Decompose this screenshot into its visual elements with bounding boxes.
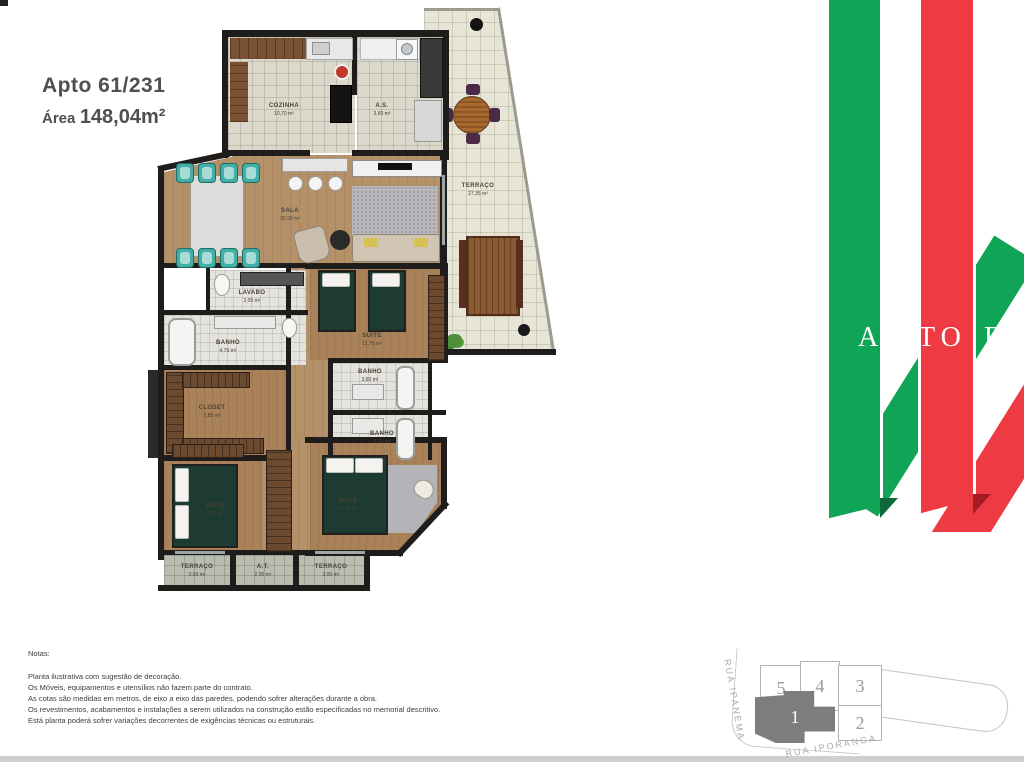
area-value: 148,04m²: [80, 106, 166, 128]
logo-letter-a: A: [858, 322, 884, 354]
site-unit-3: 3: [838, 665, 882, 707]
shaft: [148, 370, 158, 458]
deck-bench: [516, 240, 523, 308]
deck-table: [466, 236, 520, 316]
hall-wardrobe: [266, 450, 292, 552]
kitchen-cabinet-brown: [230, 38, 306, 59]
wall: [305, 263, 447, 269]
wall: [222, 150, 310, 156]
logo-letter-to: TO: [918, 322, 967, 354]
bar-stool: [328, 176, 343, 191]
dining-chair: [220, 248, 238, 268]
mid-suite-wardrobe: [428, 275, 445, 361]
notes-line: Planta ilustrativa com sugestão de decor…: [28, 671, 440, 682]
apartment-area: Área 148,04m²: [42, 106, 165, 129]
logo-red-bar: [918, 0, 976, 514]
terrace-column: [518, 324, 530, 336]
coffee-table: [330, 230, 350, 250]
logo-letter-fi: FI: [984, 322, 1021, 354]
terrace-chair: [466, 84, 480, 95]
tv: [378, 163, 412, 170]
wall: [428, 363, 432, 460]
bathtub: [168, 318, 196, 366]
left-suite-dresser: [172, 444, 244, 458]
bed-pillow: [326, 458, 354, 473]
bed-pillow: [175, 505, 189, 539]
notes-block: Notas: Planta ilustrativa com sugestão d…: [28, 648, 440, 726]
dining-chair: [176, 163, 194, 183]
dining-chair: [242, 248, 260, 268]
wall-left-outer: [158, 168, 164, 560]
bath1-tub: [396, 366, 415, 410]
notes-line: Os Móveis, equipamentos e utensílios não…: [28, 682, 440, 693]
wall: [443, 30, 449, 160]
wall: [305, 437, 447, 443]
dining-chair: [198, 163, 216, 183]
sofa-pillow: [414, 238, 428, 247]
area-label: Área: [42, 110, 75, 127]
apartment-title: Apto 61/231: [42, 74, 165, 98]
wall: [352, 150, 449, 156]
lavabo-sink-counter: [240, 272, 304, 286]
wall: [364, 555, 370, 591]
notes-line: Está planta poderá sofrer variações deco…: [28, 715, 440, 726]
kitchen-side-cabinet: [230, 62, 248, 122]
logo-green-fold: [880, 498, 898, 518]
bath-toilet: [282, 318, 297, 338]
oven-tower: [330, 85, 352, 123]
dining-chair: [220, 163, 238, 183]
dining-table: [190, 175, 244, 257]
wall: [440, 349, 556, 355]
service-tall-cabinet: [420, 38, 443, 98]
window-glass: [175, 551, 225, 554]
wall: [158, 585, 370, 591]
round-table: [453, 96, 491, 134]
bed-pillow: [372, 273, 400, 287]
window-glass: [442, 175, 445, 245]
terrace-chair: [489, 108, 500, 122]
bar-stool: [308, 176, 323, 191]
logo-green-bar: [826, 0, 883, 519]
bar-stool: [288, 176, 303, 191]
dining-chair: [242, 163, 260, 183]
dining-chair: [198, 248, 216, 268]
brand-logo: A TO FI: [812, 0, 1024, 532]
bar-counter: [282, 158, 348, 172]
terrace-plant-black: [470, 18, 483, 31]
bath-sink-counter: [214, 316, 276, 329]
deck-bench: [459, 240, 466, 308]
lavabo-toilet: [214, 274, 230, 296]
bottom-terrace-floor: [164, 555, 368, 588]
dining-chair: [176, 248, 194, 268]
corner-artifact: [0, 0, 8, 6]
bed-pillow: [322, 273, 350, 287]
bath2-tub: [396, 418, 415, 460]
notes-line: Os revestimentos, acabamentos e instalaç…: [28, 704, 440, 715]
notes-heading: Notas:: [28, 648, 440, 659]
bath1-sink: [352, 384, 384, 400]
bed-pillow: [175, 468, 189, 502]
page: Apto 61/231 Área 148,04m²: [0, 0, 1024, 768]
site-wing-outline: [862, 667, 1011, 735]
wall: [286, 268, 291, 460]
wall: [293, 555, 299, 588]
service-shelf: [414, 100, 442, 142]
wall: [230, 555, 236, 588]
kitchen-sink: [312, 42, 330, 55]
wall: [222, 30, 449, 37]
site-plan: 5 4 3 2 1 RUA IPANEMA RUA IPORANGA: [715, 645, 1020, 760]
wall: [222, 30, 228, 158]
bath2-sink: [352, 418, 384, 434]
closet-wardrobe-top: [182, 372, 250, 388]
terrace-parapet-top: [424, 8, 500, 11]
bed-pillow: [355, 458, 383, 473]
window-glass: [315, 551, 365, 554]
wall: [441, 437, 447, 509]
notes-line: As cotas são medidas em metros, de eixo …: [28, 693, 440, 704]
red-appliance: [334, 64, 350, 80]
wall: [328, 358, 333, 460]
wall: [206, 268, 210, 314]
terrace-chair: [466, 133, 480, 144]
washer-door: [401, 43, 413, 55]
sofa-pillow: [364, 238, 378, 247]
